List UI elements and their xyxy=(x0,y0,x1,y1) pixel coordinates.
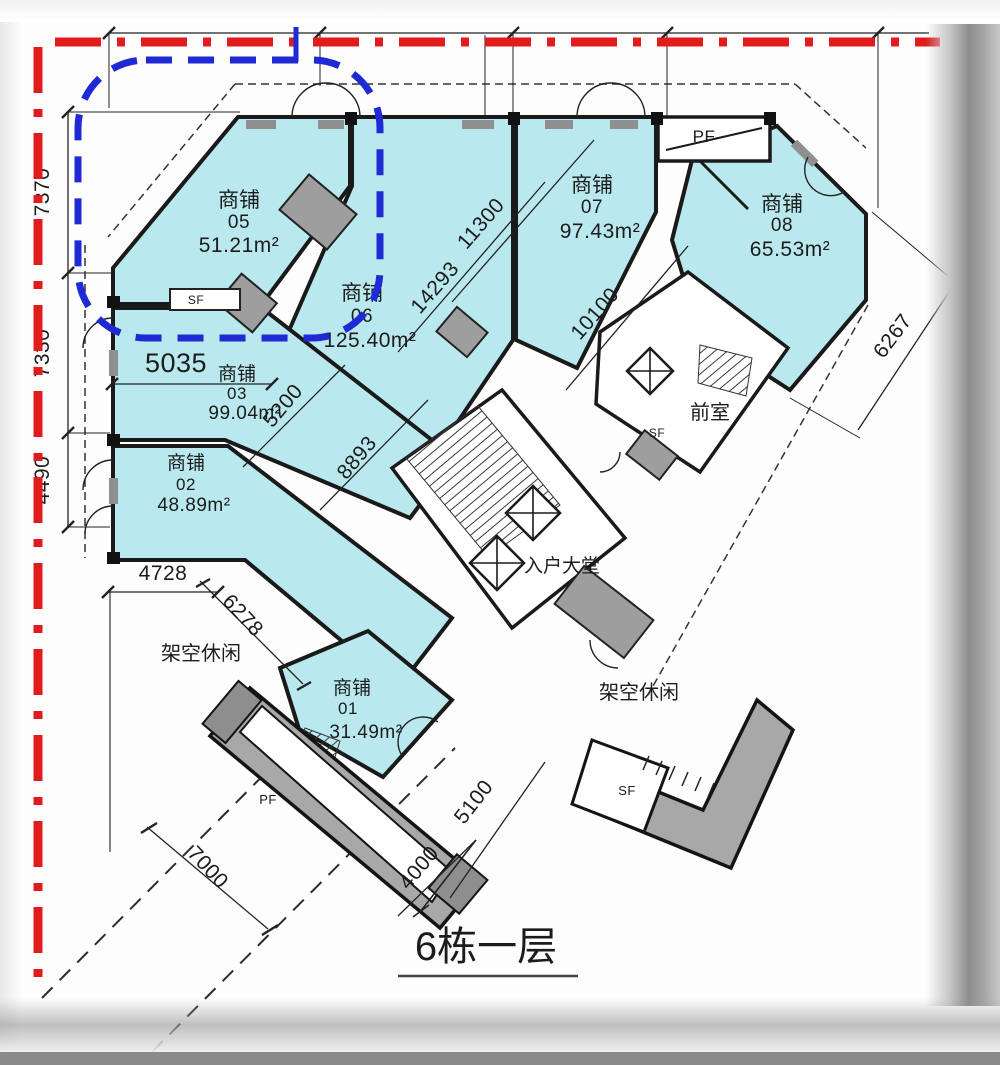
shop08-type: 商铺 xyxy=(761,193,803,216)
plan-title-group: 6栋一层 xyxy=(398,925,578,976)
door-left-2 xyxy=(83,460,113,490)
dim-5100: 5100 xyxy=(450,776,498,829)
sf-closet-label: SF xyxy=(188,293,204,307)
shop06-area: 125.40m² xyxy=(324,329,417,352)
floor-plan-canvas: 7370 7330 4490 xyxy=(0,0,1000,1065)
leisure-left-label: 架空休闲 xyxy=(161,642,241,665)
sf-closet-shop05 xyxy=(170,289,240,310)
sf-bottom-label: SF xyxy=(618,783,636,798)
shop07-no: 07 xyxy=(581,197,603,218)
sf-vestibule-label: SF xyxy=(649,426,665,440)
junction xyxy=(107,296,120,308)
shop01-no: 01 xyxy=(338,699,358,718)
junction xyxy=(345,112,357,125)
junction xyxy=(107,434,120,446)
door-vestibule xyxy=(600,452,620,472)
window-bar xyxy=(462,120,494,129)
junction xyxy=(107,552,120,564)
window-bar xyxy=(246,120,276,129)
leisure-right-label: 架空休闲 xyxy=(599,681,679,704)
shop02-no: 02 xyxy=(176,475,196,494)
shop03-type: 商铺 xyxy=(218,363,256,385)
vestibule-label: 前室 xyxy=(690,401,730,424)
window-bar xyxy=(109,350,118,376)
shop03-area: 99.04m² xyxy=(208,403,281,424)
dimline-5100 xyxy=(450,762,545,898)
dim-6267: 6267 xyxy=(869,310,917,363)
shop07-type: 商铺 xyxy=(571,174,613,197)
shop02-type: 商铺 xyxy=(167,452,205,474)
floor-plan-photo: 7370 7330 4490 xyxy=(0,0,1000,1065)
sf-bottom-core xyxy=(572,700,793,868)
shop02-area: 48.89m² xyxy=(157,495,230,516)
plan-title: 6栋一层 xyxy=(415,925,557,969)
double-door-top-1 xyxy=(292,83,360,117)
shop08-no: 08 xyxy=(771,215,793,236)
shop07-area: 97.43m² xyxy=(560,220,641,243)
shop05-type: 商铺 xyxy=(218,189,260,212)
junction xyxy=(764,112,776,125)
dim-6278: 6278 xyxy=(218,590,268,641)
dim-7000: 7000 xyxy=(183,842,233,893)
dim-5035: 5035 xyxy=(145,348,207,378)
pf-top-label: PF xyxy=(693,127,716,146)
door-left-3 xyxy=(85,506,113,534)
dimline-6267 xyxy=(858,286,953,430)
double-door-top-2 xyxy=(577,83,645,117)
setback-right-diagonal xyxy=(795,84,866,148)
junction xyxy=(508,112,520,125)
dim-4728: 4728 xyxy=(139,562,188,585)
window-bar xyxy=(109,478,118,504)
shop01-type: 商铺 xyxy=(333,677,371,699)
window-bar xyxy=(610,120,638,129)
window-bar xyxy=(545,120,573,129)
window-bar xyxy=(318,120,344,129)
shop05-no: 05 xyxy=(228,212,250,233)
shop03-no: 03 xyxy=(227,384,247,403)
shop05-area: 51.21m² xyxy=(199,234,280,257)
pf-bottom-label: PF xyxy=(259,792,277,807)
shop01-area: 31.49m² xyxy=(329,722,402,743)
lobby-label: 入户大堂 xyxy=(524,555,600,577)
junction xyxy=(651,112,663,125)
shop08-area: 65.53m² xyxy=(750,238,831,261)
